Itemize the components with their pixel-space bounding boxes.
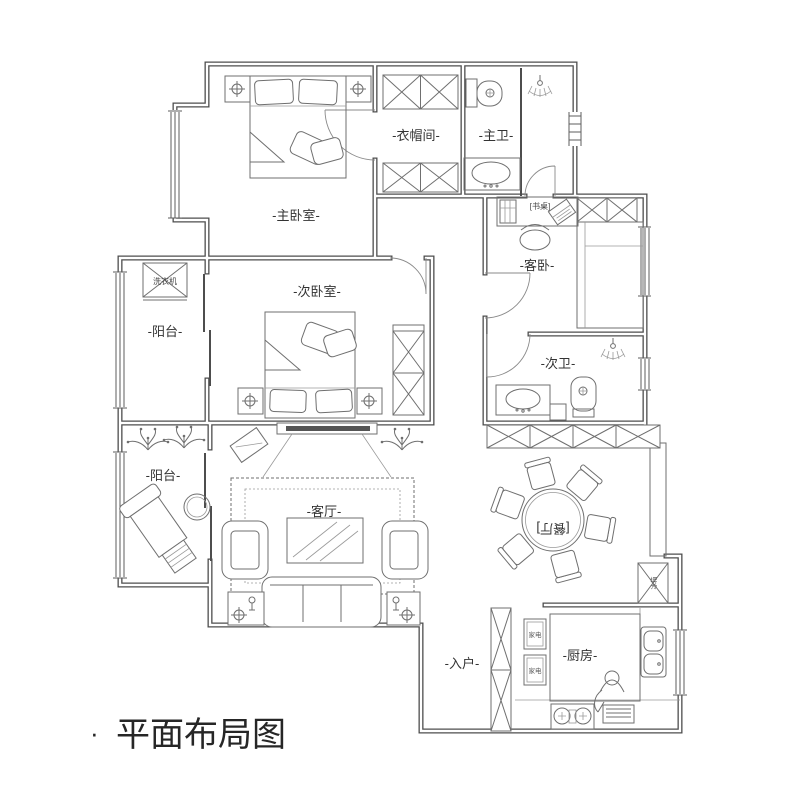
room-label-living-room: -客厅- <box>307 504 342 519</box>
ceiling-lamp-icon <box>242 393 258 409</box>
desk: [书桌] <box>497 197 578 226</box>
guest-bedroom-door <box>485 273 530 318</box>
living-room: -客厅- <box>222 423 428 627</box>
balcony-upper: 洗衣机 -阳台- <box>143 263 187 339</box>
armchair <box>382 521 428 579</box>
room-label-master-bedroom: -主卧室- <box>272 208 320 223</box>
double-bed <box>250 76 346 178</box>
room-label-balcony-upper: -阳台- <box>148 324 183 339</box>
stove-icon <box>551 704 594 729</box>
laptop-icon <box>548 199 575 225</box>
dining-chair <box>565 464 603 502</box>
toilet-icon <box>571 377 596 417</box>
armchair <box>222 521 268 579</box>
room-label-master-bath: -主卫- <box>479 128 514 143</box>
fridge: 冰箱 <box>638 563 668 603</box>
room-label-dining: [餐厅] <box>536 521 569 536</box>
master-bedroom: -主卧室- <box>225 76 371 223</box>
hatched-wall <box>650 443 666 556</box>
small-cabinet <box>550 404 566 420</box>
tv-wall <box>263 423 391 477</box>
dining-chair <box>497 532 535 570</box>
wardrobe-cabinet <box>383 75 458 109</box>
shower-icon <box>601 338 625 360</box>
room-label-second-bedroom: -次卧室- <box>293 284 341 299</box>
second-bedroom: -次卧室- <box>238 284 424 418</box>
storage-cabinet-row <box>487 425 660 448</box>
bay-window <box>168 110 182 218</box>
page-title: 平面布局图 <box>116 716 286 754</box>
sink-icon <box>496 385 550 415</box>
lounge-chair <box>118 483 203 579</box>
picture-frame <box>230 428 268 463</box>
second-bath-window <box>638 358 651 390</box>
master-bath: -主卫- <box>464 75 552 190</box>
balcony-upper-window <box>113 272 127 408</box>
dining-chair <box>584 513 616 543</box>
shoe-cabinet <box>491 608 511 731</box>
plant-icon <box>381 428 424 450</box>
plant-icon <box>163 426 206 448</box>
plant-icon <box>127 428 170 450</box>
master-bath-window <box>568 112 582 146</box>
dining-chair <box>490 487 525 521</box>
room-label-guest-bedroom: -客卧- <box>520 258 555 273</box>
floor-plan-page: -主卧室- -衣帽间- -主卫- <box>0 0 800 800</box>
title-bullet: · <box>90 718 99 748</box>
room-label-closet: -衣帽间- <box>392 128 440 143</box>
room-label-balcony-lower: -阳台- <box>146 468 181 483</box>
dining-chair <box>524 457 556 491</box>
guest-bedroom-window <box>638 227 651 296</box>
ceiling-lamp-icon <box>361 393 377 409</box>
drawing-title: · 平面布局图 <box>90 716 286 754</box>
desk-chair <box>520 225 550 251</box>
entrance: -入户- <box>445 608 511 731</box>
double-bed <box>265 312 358 418</box>
coffee-table <box>287 518 363 563</box>
second-bedroom-door <box>390 258 426 294</box>
appliance-box: 家电 <box>524 655 546 685</box>
room-label-entrance: -入户- <box>445 656 480 671</box>
balcony-upper-sliding-door <box>204 274 210 386</box>
closet-room: -衣帽间- <box>383 75 458 192</box>
side-table <box>387 592 420 625</box>
wardrobe-cabinet <box>383 163 458 192</box>
room-label-second-bath: -次卫- <box>541 356 576 371</box>
round-side-table <box>184 494 210 520</box>
vent-icon <box>603 705 634 723</box>
dining-table <box>522 489 584 551</box>
washing-machine: 洗衣机 <box>143 263 187 300</box>
kitchen-window <box>673 630 687 695</box>
appliance-label: 家电 <box>529 630 543 639</box>
ceiling-lamp-icon <box>229 81 245 97</box>
second-bath-door <box>487 334 530 377</box>
appliance-label: 家电 <box>529 666 543 675</box>
wardrobe-cabinet <box>577 198 637 222</box>
fridge-label: 冰箱 <box>649 576 658 590</box>
sofa <box>262 577 381 627</box>
ceiling-lamp-icon <box>350 81 366 97</box>
side-table <box>228 592 264 625</box>
toilet-icon <box>466 79 502 107</box>
master-bath-door <box>525 166 555 196</box>
single-bed <box>577 222 643 328</box>
kitchen: 家电 家电 -厨房- <box>515 608 680 729</box>
second-bath: -次卫- <box>496 338 625 420</box>
floor-plan-drawing: -主卧室- -衣帽间- -主卫- <box>0 0 800 800</box>
guest-bedroom: [书桌] -客卧- <box>497 197 643 328</box>
wardrobe-cabinet <box>393 325 424 415</box>
appliance-box: 家电 <box>524 619 546 649</box>
shower-icon <box>528 75 552 97</box>
sink-icon <box>464 158 520 190</box>
person-icon <box>595 671 624 712</box>
tv <box>286 426 370 431</box>
washing-machine-label: 洗衣机 <box>153 276 177 286</box>
dining-area: [餐厅] 冰箱 <box>487 425 668 603</box>
dining-chair <box>549 549 581 583</box>
desk-label: [书桌] <box>530 201 550 211</box>
double-sink-icon <box>641 627 666 677</box>
balcony-lower: -阳台- <box>118 426 210 579</box>
room-label-kitchen: -厨房- <box>563 648 598 663</box>
